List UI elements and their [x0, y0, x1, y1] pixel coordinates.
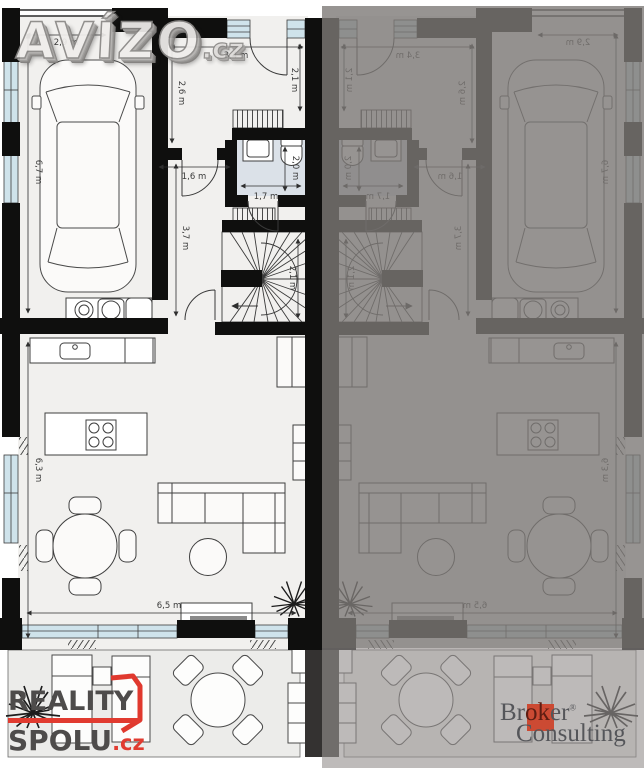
dim-living-width: 6,5 m	[157, 601, 182, 611]
dim-garage-width: 2,9 m	[54, 38, 79, 48]
coffee-table	[190, 539, 227, 576]
radiator	[233, 110, 283, 128]
left-unit-plan: 2,9 m 3,4 m 2,6 m 2,1 m 6,7 m 1,6 m 3,7 …	[0, 8, 322, 757]
floorplan-drawing: 2,9 m 3,4 m 2,6 m 2,1 m 6,7 m 1,6 m 3,7 …	[0, 0, 644, 768]
dim-entry-left: 2,6 m	[176, 81, 186, 106]
dim-garage-length: 6,7 m	[33, 160, 43, 185]
dim-hall-door: 1,6 m	[182, 172, 207, 182]
right-unit-overlay-bottom	[322, 648, 644, 768]
dim-hall-width: 3,4 m	[224, 51, 249, 61]
dim-corridor: 3,7 m	[180, 226, 190, 251]
dim-wc-depth: 2,0 m	[290, 156, 300, 181]
dim-living-depth: 6,3 m	[33, 458, 43, 483]
garage-door	[20, 10, 112, 16]
dim-stairs: 2,1 m	[287, 266, 297, 291]
stair-landing	[221, 270, 262, 287]
right-unit-overlay	[322, 6, 644, 648]
floorplan-page: 2,9 m 3,4 m 2,6 m 2,1 m 6,7 m 1,6 m 3,7 …	[0, 0, 644, 768]
dim-wc-width: 1,7 m	[254, 192, 279, 202]
car-icon	[32, 60, 144, 292]
dim-entry-right: 2,1 m	[289, 68, 299, 93]
tv-cabinet	[181, 603, 252, 622]
